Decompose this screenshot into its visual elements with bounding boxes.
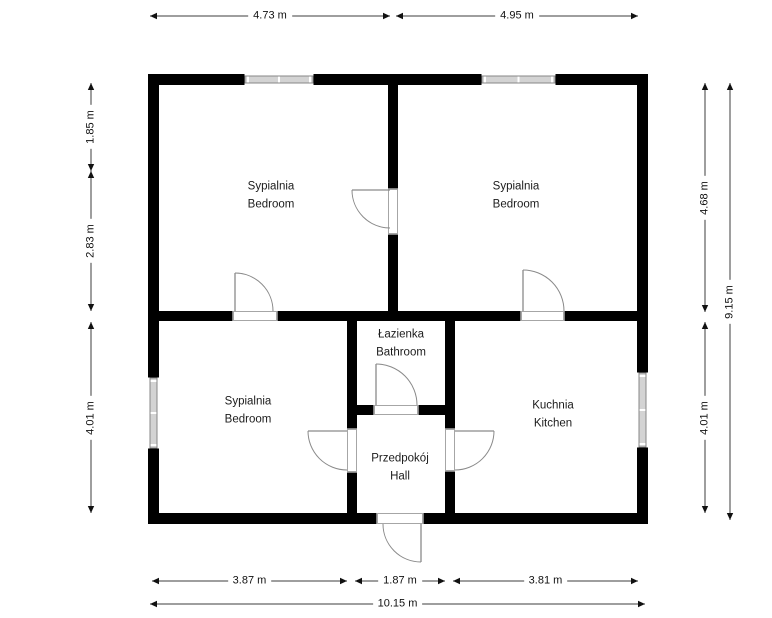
door-entrance — [383, 524, 421, 562]
room-label-bedroom-bottom-left: Sypialnia Bedroom — [225, 394, 272, 429]
dim-bottom-left-label: 3.87 m — [228, 575, 272, 588]
room-name-pl: Przedpokój — [371, 451, 429, 469]
room-label-kitchen: Kuchnia Kitchen — [532, 398, 574, 433]
door-bedrooms-left — [235, 273, 273, 311]
door-hall-kitchen — [455, 431, 494, 470]
dim-top-left-label: 4.73 m — [248, 10, 292, 23]
opening-door-bedrooms-left — [233, 311, 278, 322]
dim-right-total-label: 9.15 m — [724, 280, 737, 324]
room-name-pl: Sypialnia — [248, 179, 295, 197]
dim-top-right-label: 4.95 m — [495, 10, 539, 23]
room-name-en: Bedroom — [225, 411, 272, 429]
window-bedroom-bottom-left — [148, 378, 160, 449]
room-name-en: Bathroom — [376, 344, 426, 362]
floor-plan: Sypialnia Bedroom Sypialnia Bedroom Sypi… — [0, 0, 772, 618]
dim-right-upper-label: 4.68 m — [699, 176, 712, 220]
door-bathroom — [376, 364, 417, 405]
window-bedroom-top-left — [245, 74, 314, 86]
wall-hall-right — [445, 321, 455, 513]
dim-bottom-total-label: 10.15 m — [373, 598, 423, 611]
wall-interior-horizontal — [159, 311, 637, 321]
dim-bottom-middle-label: 1.87 m — [378, 575, 422, 588]
dim-left-lower-label: 4.01 m — [85, 396, 98, 440]
opening-door-hall-bedroom — [347, 429, 358, 473]
room-name-en: Hall — [371, 468, 429, 486]
room-label-hall: Przedpokój Hall — [371, 451, 429, 486]
room-name-en: Bedroom — [493, 196, 540, 214]
window-bedroom-top-right — [482, 74, 556, 86]
wall-exterior-left — [148, 74, 159, 524]
window-kitchen — [637, 373, 649, 448]
opening-door-entrance — [377, 513, 424, 525]
wall-hall-left — [347, 321, 357, 513]
room-name-en: Kitchen — [532, 415, 574, 433]
door-bedroom-right — [523, 270, 564, 311]
wall-exterior-top — [148, 74, 648, 85]
floor-plan-drawing — [0, 0, 772, 618]
wall-exterior-right — [637, 74, 648, 524]
room-name-pl: Sypialnia — [493, 179, 540, 197]
dim-right-lower-label: 4.01 m — [699, 396, 712, 440]
room-label-bedroom-top-right: Sypialnia Bedroom — [493, 179, 540, 214]
opening-door-bedroom-right — [521, 311, 565, 322]
dim-bottom-right-label: 3.81 m — [524, 575, 568, 588]
room-label-bathroom: Łazienka Bathroom — [376, 327, 426, 362]
room-name-pl: Łazienka — [376, 327, 426, 345]
dim-left-upper-label: 1.85 m — [85, 105, 98, 149]
opening-door-bathroom — [374, 405, 419, 416]
room-name-pl: Sypialnia — [225, 394, 272, 412]
room-name-pl: Kuchnia — [532, 398, 574, 416]
room-label-bedroom-top-left: Sypialnia Bedroom — [248, 179, 295, 214]
door-hall-bedroom — [308, 431, 347, 470]
door-bedrooms-top — [352, 190, 390, 228]
opening-door-hall-kitchen — [445, 429, 456, 472]
room-name-en: Bedroom — [248, 196, 295, 214]
dim-left-middle-label: 2.83 m — [85, 219, 98, 263]
